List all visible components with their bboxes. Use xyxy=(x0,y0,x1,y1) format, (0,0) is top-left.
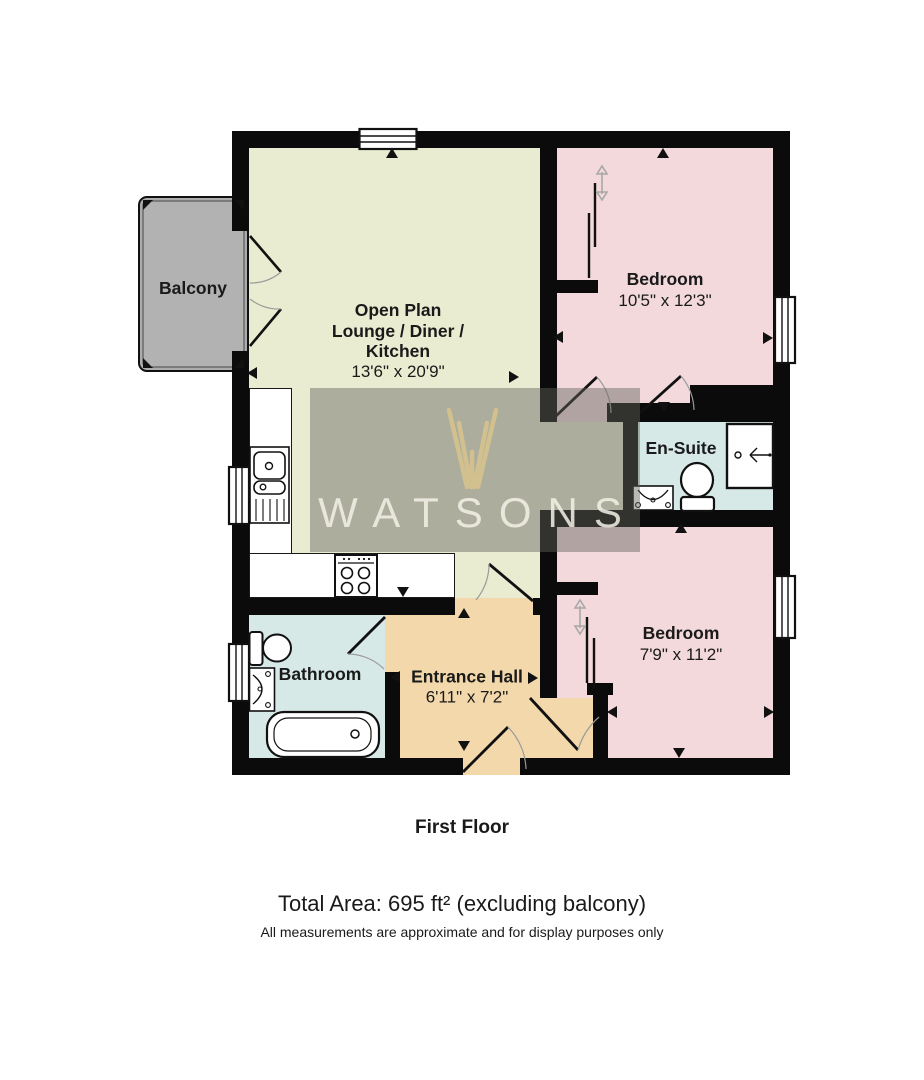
entrance-hall-dimensions: 6'11" x 7'2" xyxy=(411,687,523,708)
bedroom2-dimensions: 7'9" x 11'2" xyxy=(640,644,723,665)
wall-lounge-bottom xyxy=(232,598,455,615)
wall-bathroom-right xyxy=(385,672,400,758)
lounge-dimensions: 13'6" x 20'9" xyxy=(332,362,464,383)
bedroom1-dimensions: 10'5" x 12'3" xyxy=(618,290,711,312)
wall-notch-top xyxy=(587,683,613,695)
wall-right xyxy=(773,131,790,775)
ensuite-label: En-Suite xyxy=(646,438,717,459)
room-bathroom xyxy=(249,615,385,758)
entrance-door-gap xyxy=(463,758,520,775)
wall-left-upper xyxy=(232,131,249,231)
wall-left-lower xyxy=(232,351,249,775)
bedroom2-label: Bedroom 7'9" x 11'2" xyxy=(640,623,723,665)
balcony-label: Balcony xyxy=(159,278,227,299)
wall-wardrobe2-stub xyxy=(557,582,598,595)
total-area-text: Total Area: 695 ft² (excluding balcony) xyxy=(0,891,924,917)
floorplan-page: WATSONS Balcony Open Plan Lounge / Diner… xyxy=(0,0,924,1080)
wall-bottom-right xyxy=(520,758,790,775)
wall-ensuite-top-left xyxy=(640,403,690,422)
wall-bottom-left xyxy=(232,758,463,775)
wall-bedroom1-ensuite xyxy=(690,385,773,422)
bathroom-label: Bathroom xyxy=(279,664,362,685)
wall-wardrobe1-stub xyxy=(557,280,598,293)
watermark-text: WATSONS xyxy=(318,489,638,537)
entrance-hall-label: Entrance Hall 6'11" x 7'2" xyxy=(411,667,523,708)
room-ensuite xyxy=(623,422,773,510)
kitchen-counter-bottom xyxy=(249,553,455,598)
bedroom1-label: Bedroom 10'5" x 12'3" xyxy=(618,268,711,312)
hall-lounge-door-gap xyxy=(455,598,533,615)
lounge-label: Open Plan Lounge / Diner / Kitchen 13'6"… xyxy=(332,300,464,382)
hall-bedroom2-notch xyxy=(540,698,593,758)
wall-notch-right xyxy=(593,695,608,758)
disclaimer-text: All measurements are approximate and for… xyxy=(0,924,924,940)
wall-lounge-bottom-right xyxy=(533,598,557,615)
wall-top xyxy=(232,131,790,148)
floor-title: First Floor xyxy=(0,817,924,839)
wall-lounge-bedroom1 xyxy=(540,148,557,422)
